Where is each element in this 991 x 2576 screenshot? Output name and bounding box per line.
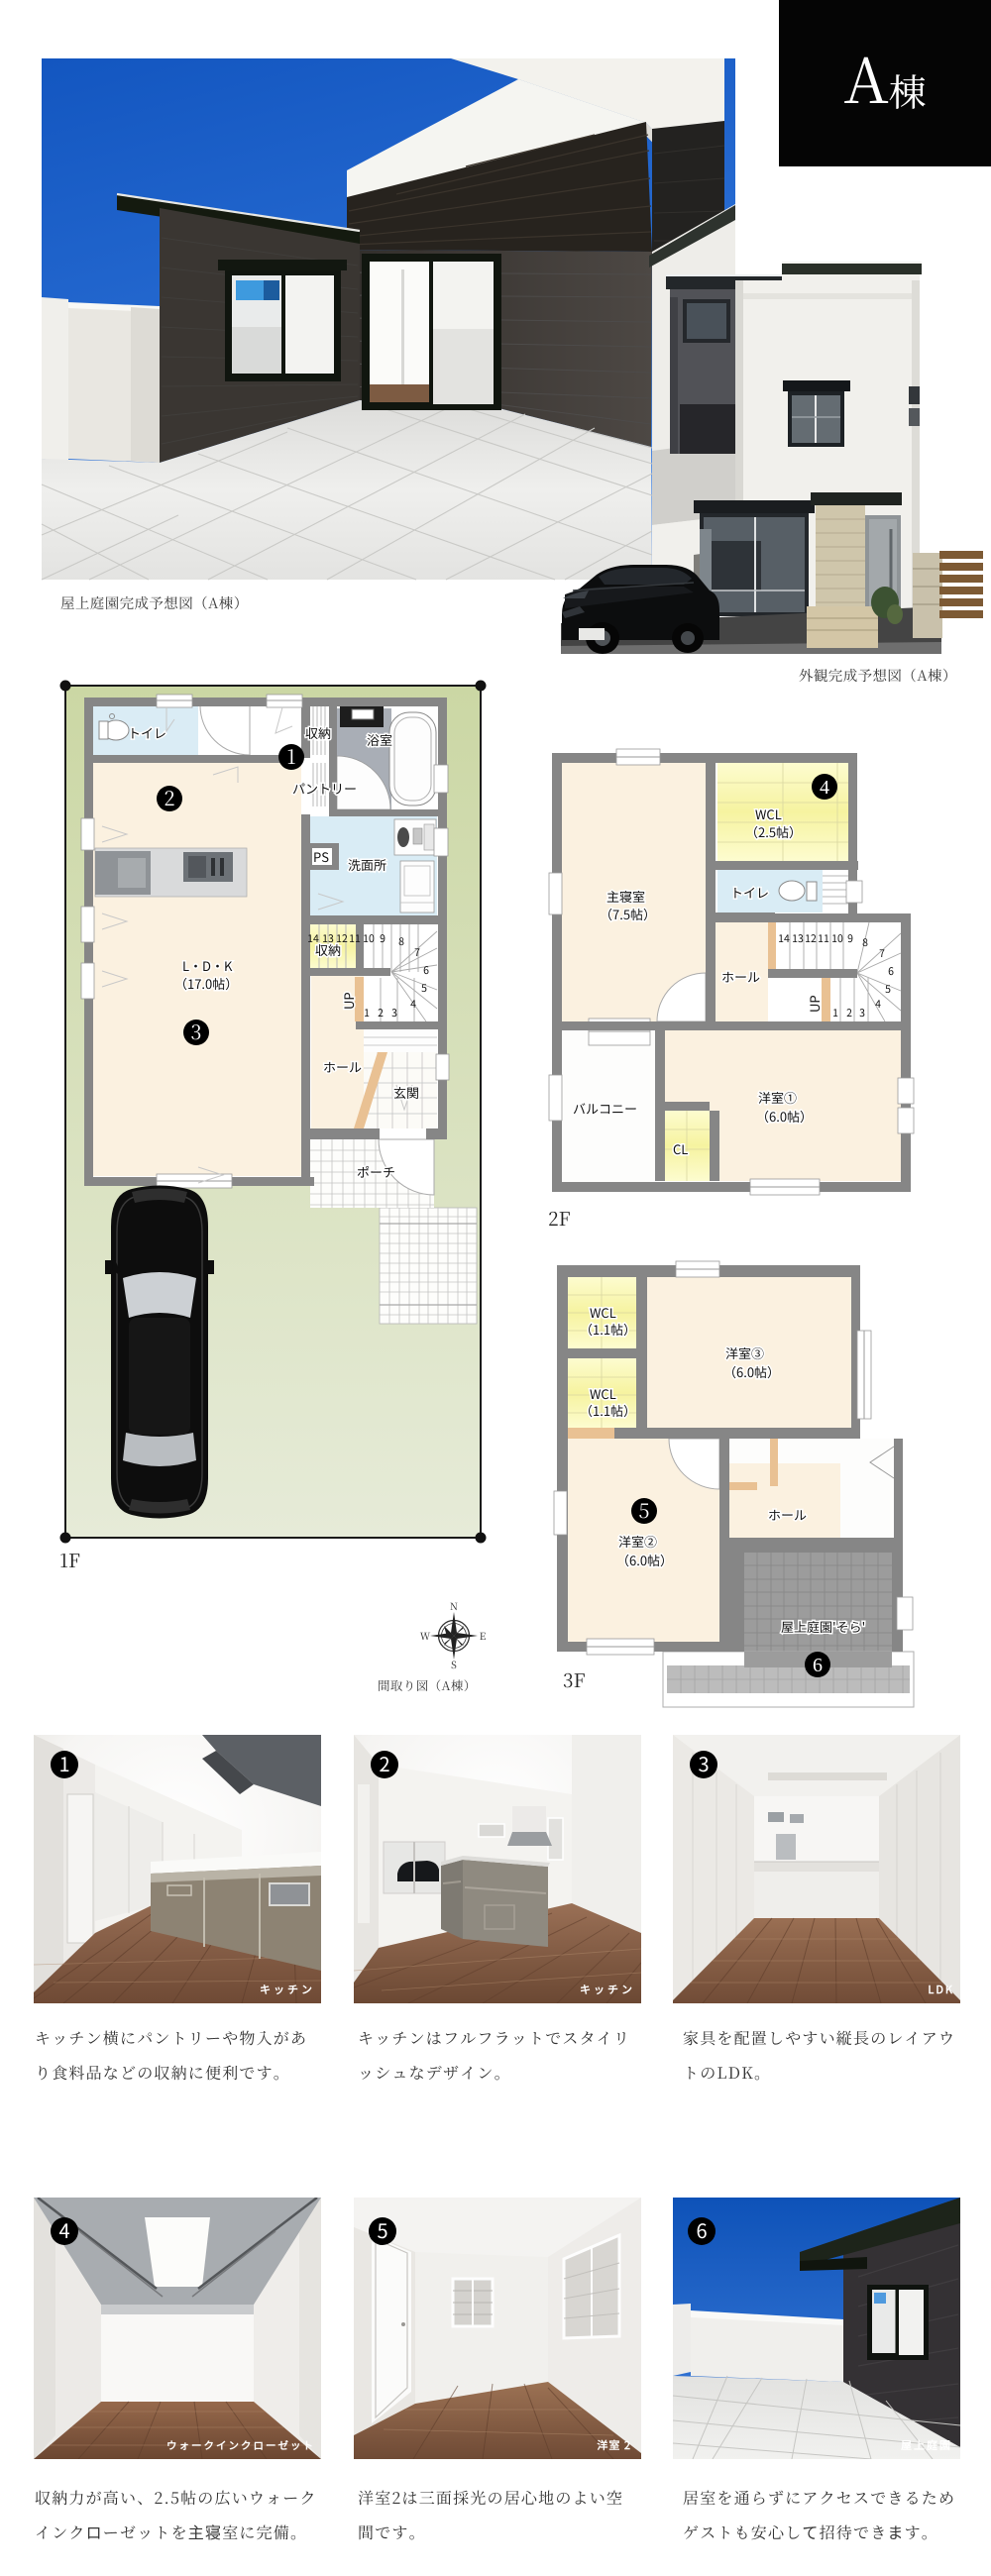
svg-text:L・D・K: L・D・K xyxy=(182,956,233,975)
svg-text:（6.0帖）: （6.0帖） xyxy=(616,1551,673,1569)
svg-text:UP: UP xyxy=(805,995,824,1013)
svg-text:4: 4 xyxy=(875,997,881,1012)
svg-text:N: N xyxy=(450,1598,458,1613)
svg-text:1: 1 xyxy=(364,1006,370,1020)
svg-text:2: 2 xyxy=(164,783,174,811)
svg-text:7: 7 xyxy=(414,945,420,960)
svg-text:キッチン: キッチン xyxy=(580,1982,635,1997)
svg-text:8: 8 xyxy=(862,935,868,950)
svg-text:14: 14 xyxy=(307,931,319,946)
svg-text:ウォークインクローゼット: ウォークインクローゼット xyxy=(166,2438,315,2453)
svg-text:1: 1 xyxy=(832,1006,838,1020)
svg-text:5: 5 xyxy=(421,981,427,996)
svg-text:パントリー: パントリー xyxy=(292,779,357,798)
svg-text:4: 4 xyxy=(820,771,829,800)
svg-text:洋室③: 洋室③ xyxy=(725,1343,764,1362)
svg-text:12: 12 xyxy=(805,931,817,946)
svg-text:屋上庭園: 屋上庭園 xyxy=(901,2437,952,2453)
svg-text:3: 3 xyxy=(859,1006,865,1020)
svg-text:WCL: WCL xyxy=(755,805,782,823)
svg-text:1: 1 xyxy=(286,741,295,770)
svg-text:6: 6 xyxy=(888,964,894,979)
svg-text:ポーチ: ポーチ xyxy=(357,1162,395,1181)
svg-text:CL: CL xyxy=(673,1139,688,1158)
svg-text:2: 2 xyxy=(846,1006,852,1020)
svg-text:10: 10 xyxy=(831,931,843,946)
svg-text:洋室 2: 洋室 2 xyxy=(597,2437,631,2453)
svg-text:ホール: ホール xyxy=(323,1057,362,1076)
svg-text:6: 6 xyxy=(423,963,429,978)
svg-text:収納: 収納 xyxy=(305,723,331,742)
svg-text:5: 5 xyxy=(377,2215,387,2244)
svg-text:洋室①: 洋室① xyxy=(758,1088,797,1107)
svg-text:1F: 1F xyxy=(59,1547,80,1573)
svg-text:（2.5帖）: （2.5帖） xyxy=(745,822,802,841)
svg-text:4: 4 xyxy=(410,997,416,1012)
svg-text:玄関: 玄関 xyxy=(393,1083,419,1102)
svg-text:6: 6 xyxy=(813,1649,823,1677)
svg-text:E: E xyxy=(480,1628,487,1643)
svg-text:3: 3 xyxy=(190,1017,201,1045)
svg-text:トイレ: トイレ xyxy=(128,723,166,742)
svg-text:6: 6 xyxy=(696,2215,707,2244)
svg-text:10: 10 xyxy=(363,931,375,946)
svg-text:バルコニー: バルコニー xyxy=(573,1099,637,1118)
svg-text:3F: 3F xyxy=(563,1666,586,1693)
svg-text:2: 2 xyxy=(379,1749,389,1777)
svg-text:（17.0帖）: （17.0帖） xyxy=(174,974,238,993)
svg-text:9: 9 xyxy=(847,931,853,946)
svg-text:11: 11 xyxy=(349,931,361,946)
svg-text:主寝室: 主寝室 xyxy=(606,887,645,906)
svg-text:13: 13 xyxy=(322,931,334,946)
svg-text:LDK: LDK xyxy=(928,1982,954,1997)
svg-text:5: 5 xyxy=(638,1495,649,1524)
svg-text:3: 3 xyxy=(698,1749,709,1777)
svg-text:2F: 2F xyxy=(548,1205,571,1232)
svg-text:UP: UP xyxy=(339,992,358,1010)
svg-text:PS: PS xyxy=(313,847,329,866)
svg-text:11: 11 xyxy=(818,931,829,946)
svg-text:4: 4 xyxy=(58,2215,69,2244)
svg-text:8: 8 xyxy=(398,934,404,949)
svg-text:洗面所: 洗面所 xyxy=(348,855,386,874)
svg-text:トイレ: トイレ xyxy=(730,883,769,902)
svg-text:（1.1帖）: （1.1帖） xyxy=(580,1401,636,1420)
svg-text:ホール: ホール xyxy=(768,1505,807,1524)
svg-text:5: 5 xyxy=(885,982,891,997)
svg-text:3: 3 xyxy=(391,1006,397,1020)
svg-text:（6.0帖）: （6.0帖） xyxy=(756,1107,813,1126)
svg-text:14: 14 xyxy=(778,931,790,946)
svg-text:13: 13 xyxy=(792,931,804,946)
svg-text:キッチン: キッチン xyxy=(260,1982,315,1997)
svg-text:1: 1 xyxy=(58,1749,69,1777)
svg-text:（1.1帖）: （1.1帖） xyxy=(580,1320,636,1339)
svg-text:2: 2 xyxy=(378,1006,384,1020)
svg-text:（7.5帖）: （7.5帖） xyxy=(600,905,656,923)
svg-text:浴室: 浴室 xyxy=(367,730,392,749)
svg-text:S: S xyxy=(451,1657,457,1671)
svg-text:7: 7 xyxy=(879,946,885,961)
svg-text:（6.0帖）: （6.0帖） xyxy=(723,1362,780,1381)
svg-text:9: 9 xyxy=(380,931,385,946)
svg-text:12: 12 xyxy=(336,931,348,946)
svg-text:ホール: ホール xyxy=(721,967,760,986)
svg-text:W: W xyxy=(420,1628,431,1643)
svg-text:洋室②: 洋室② xyxy=(618,1532,657,1551)
svg-text:屋上庭園'そら': 屋上庭園'そら' xyxy=(781,1617,865,1636)
